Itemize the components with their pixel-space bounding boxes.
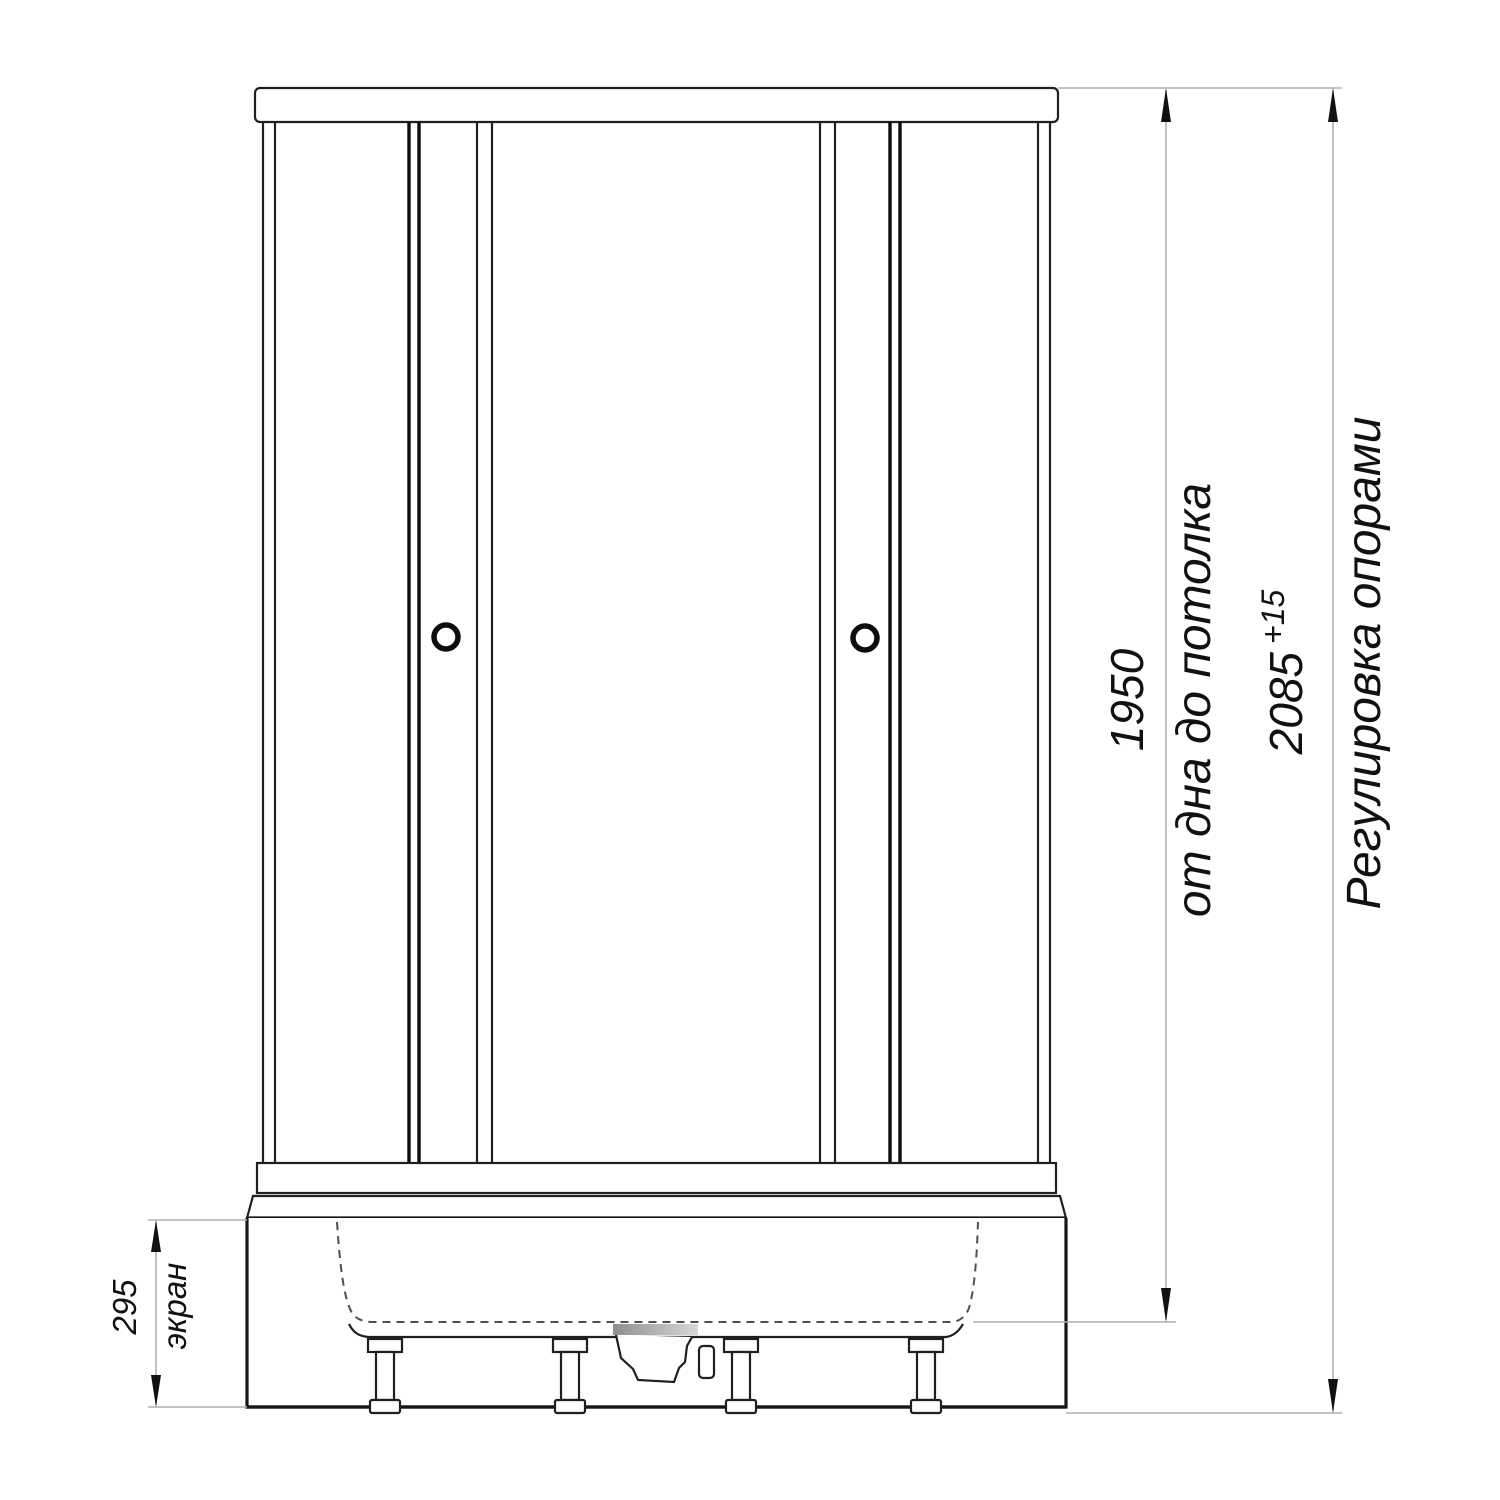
apron-height-label: экран — [156, 1263, 193, 1350]
glass-panel-lines — [263, 122, 1050, 1163]
dimension-total-height — [1328, 88, 1338, 1413]
inner-height-value: 1950 — [1101, 648, 1153, 751]
total-height-value: 2085+15 — [1255, 589, 1312, 755]
drain-opening — [613, 1324, 698, 1335]
tray-rim — [247, 1196, 1066, 1218]
total-height-label: Регулировка опорами — [1338, 416, 1391, 909]
cabin-body — [255, 88, 1058, 1163]
top-rail — [255, 88, 1058, 122]
tray-base — [247, 1163, 1066, 1413]
drain-pipe — [699, 1346, 714, 1378]
bottom-rail — [257, 1163, 1056, 1193]
apron-height-value: 295 — [106, 1279, 143, 1336]
right-door-handle — [853, 626, 877, 650]
left-door-handle — [434, 625, 458, 649]
technical-drawing-page: 1950 от дна до потолка 2085+15 Регулиров… — [0, 0, 1500, 1500]
shower-cabin-drawing: 1950 от дна до потолка 2085+15 Регулиров… — [0, 0, 1500, 1500]
inner-height-label: от дна до потолка — [1168, 483, 1221, 917]
total-height-tolerance: +15 — [1255, 589, 1291, 643]
